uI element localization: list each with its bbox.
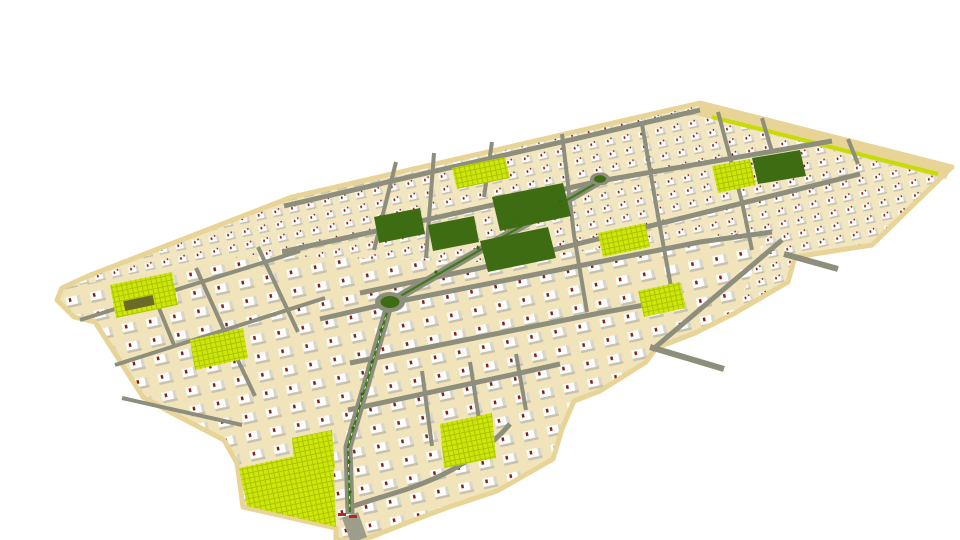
tree	[379, 328, 382, 331]
tree	[360, 392, 363, 395]
masterplan-canvas	[0, 0, 960, 540]
access-spur-east-lower	[650, 347, 724, 369]
tree	[558, 199, 561, 202]
gate-bar	[349, 515, 357, 518]
masterplan-render	[0, 0, 960, 540]
roundabout-green	[381, 296, 400, 308]
south-exit-road	[350, 515, 359, 540]
tree	[476, 246, 479, 249]
roundabout-green	[594, 175, 606, 183]
tree	[351, 426, 354, 429]
tree	[347, 460, 350, 463]
tree	[370, 360, 373, 363]
tree	[348, 490, 351, 493]
tree	[434, 270, 437, 273]
gate-bar	[338, 513, 346, 516]
tree	[518, 222, 521, 225]
